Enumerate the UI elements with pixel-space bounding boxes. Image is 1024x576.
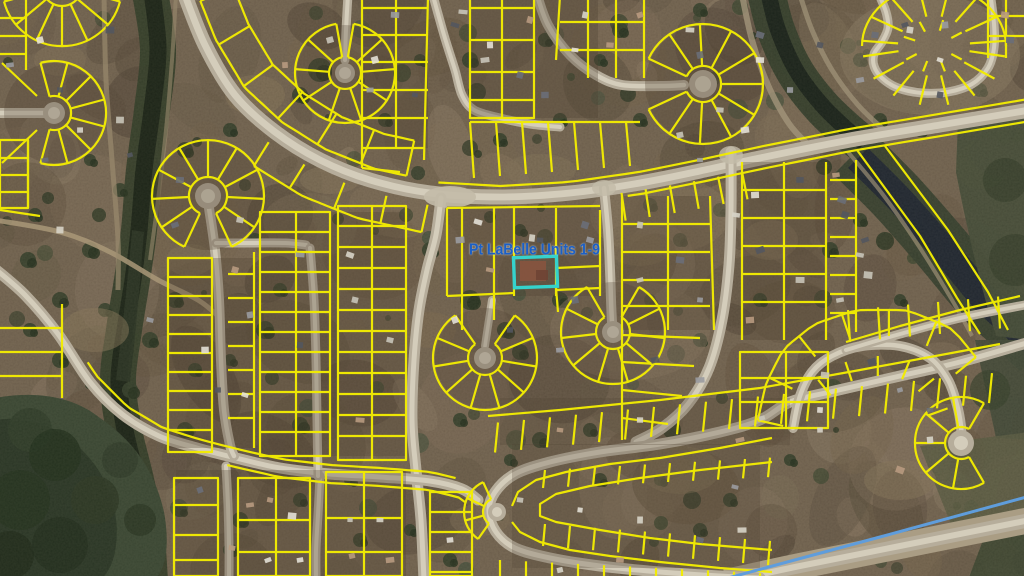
svg-text:Pt LaBelle Units 1-9: Pt LaBelle Units 1-9 xyxy=(469,242,600,259)
